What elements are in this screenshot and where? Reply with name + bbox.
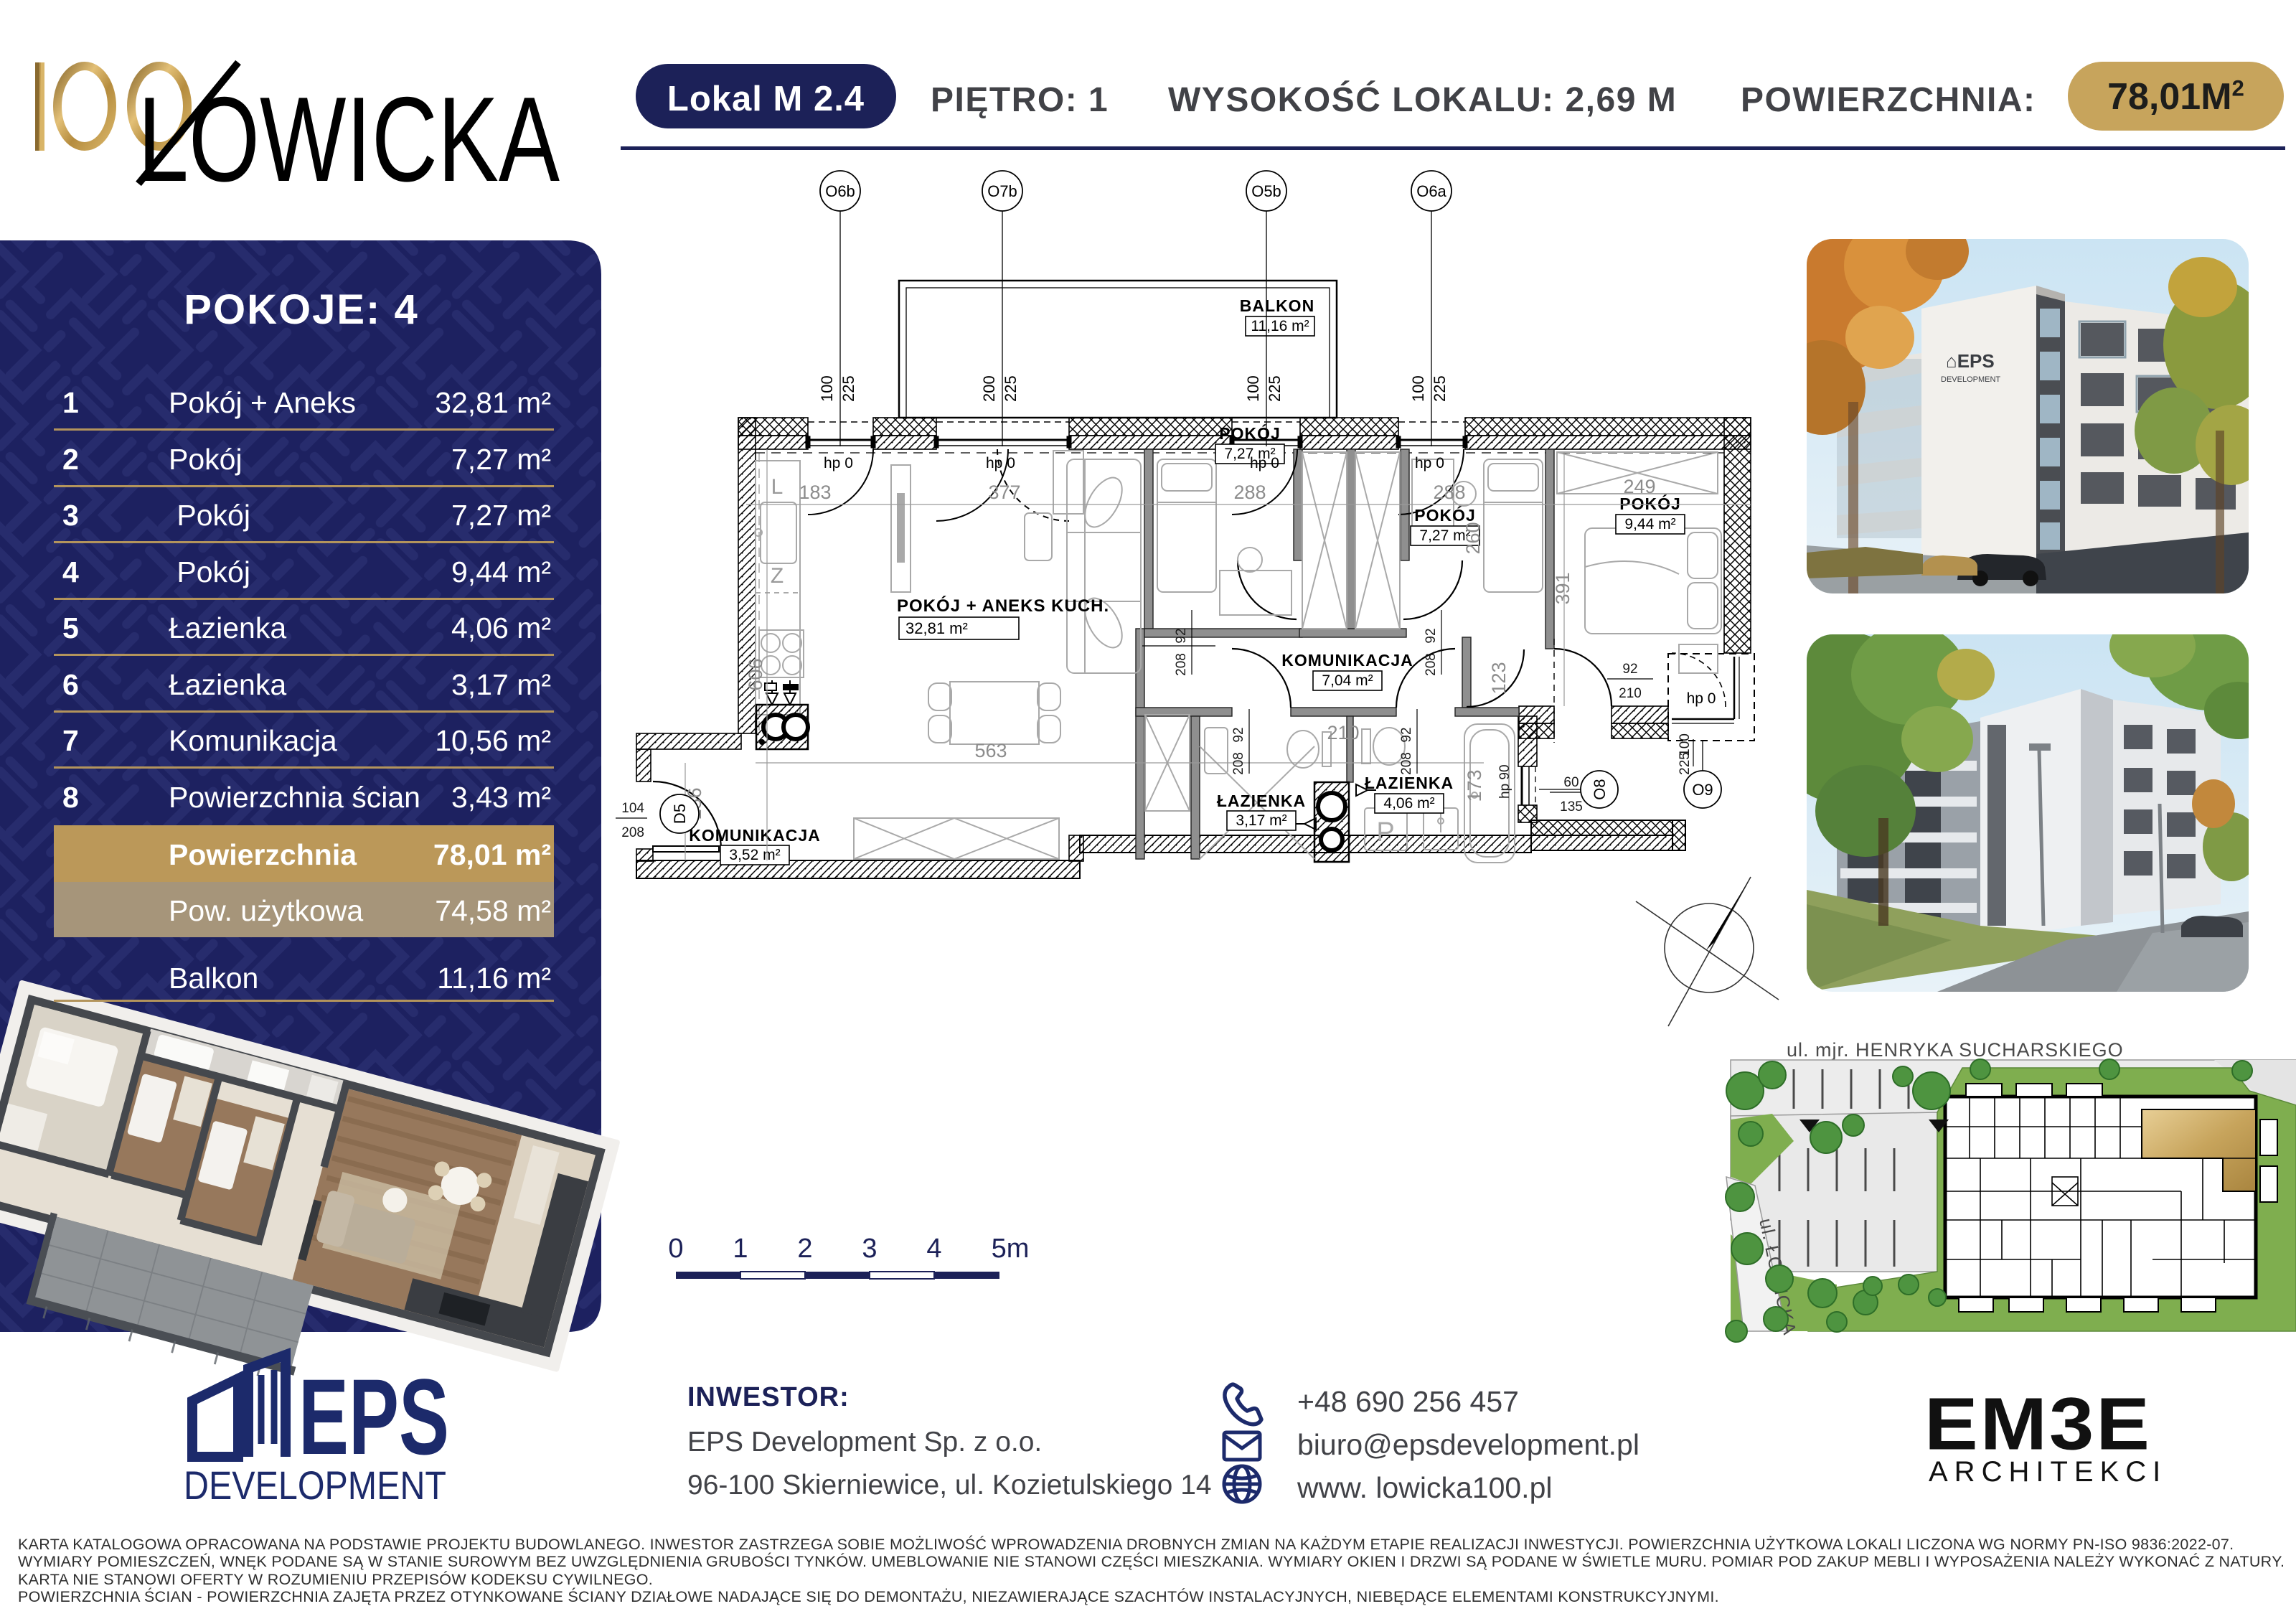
svg-text:208: 208 — [1174, 653, 1189, 676]
svg-text:225: 225 — [1002, 375, 1020, 402]
svg-text:260: 260 — [1462, 522, 1484, 554]
svg-text:7,04 m²: 7,04 m² — [1322, 672, 1373, 689]
svg-text:⌂EPS: ⌂EPS — [1946, 350, 1995, 372]
svg-text:100: 100 — [1409, 375, 1427, 402]
svg-text:O6b: O6b — [825, 182, 855, 200]
svg-text:563: 563 — [974, 740, 1007, 761]
svg-text:hp 0: hp 0 — [1250, 455, 1279, 471]
svg-text:225: 225 — [1266, 375, 1284, 402]
svg-text:225: 225 — [839, 375, 857, 402]
svg-text:O6a: O6a — [1416, 182, 1446, 200]
svg-text:O8: O8 — [1591, 779, 1609, 799]
svg-text:O5b: O5b — [1251, 182, 1281, 200]
svg-text:135: 135 — [1560, 799, 1583, 815]
svg-text:hp 0: hp 0 — [1415, 455, 1444, 471]
svg-text:KOMUNIKACJA: KOMUNIKACJA — [1281, 651, 1413, 670]
svg-text:210: 210 — [1619, 686, 1642, 701]
svg-text:L: L — [771, 475, 784, 499]
svg-text:208: 208 — [1399, 752, 1414, 775]
svg-text:92: 92 — [1424, 628, 1439, 643]
svg-text:9,44 m²: 9,44 m² — [1624, 516, 1675, 532]
svg-text:11,16 m²: 11,16 m² — [1251, 318, 1309, 334]
svg-text:104: 104 — [621, 801, 644, 816]
svg-text:hp 0: hp 0 — [1687, 690, 1716, 707]
svg-text:92: 92 — [1399, 727, 1414, 742]
svg-text:288: 288 — [1233, 482, 1266, 503]
svg-text:D5: D5 — [671, 804, 689, 824]
svg-text:DEVELOPMENT: DEVELOPMENT — [184, 1463, 446, 1508]
svg-text:3,52 m²: 3,52 m² — [729, 847, 780, 863]
svg-text:210: 210 — [1327, 722, 1359, 743]
svg-text:ul. mjr. HENRYKA SUCHARSKIEGO: ul. mjr. HENRYKA SUCHARSKIEGO — [1787, 1039, 2124, 1061]
svg-text:3,17 m²: 3,17 m² — [1236, 812, 1286, 829]
svg-text:377: 377 — [988, 482, 1020, 503]
svg-text:BALKON: BALKON — [1240, 296, 1314, 315]
svg-text:123: 123 — [1488, 662, 1510, 694]
svg-text:1: 1 — [733, 1234, 748, 1264]
svg-text:606: 606 — [745, 658, 766, 690]
svg-text:hp 0: hp 0 — [986, 455, 1015, 471]
svg-text:249: 249 — [1623, 476, 1655, 497]
svg-text:POKÓJ: POKÓJ — [1414, 505, 1476, 525]
svg-text:ARCHITEKCI: ARCHITEKCI — [1929, 1456, 2167, 1488]
svg-text:225: 225 — [1431, 375, 1449, 402]
svg-text:hp 0: hp 0 — [824, 455, 853, 471]
svg-text:0: 0 — [668, 1234, 683, 1264]
svg-text:92: 92 — [1174, 628, 1189, 643]
svg-text:DEVELOPMENT: DEVELOPMENT — [1941, 375, 2000, 384]
svg-text:ŁAZIENKA: ŁAZIENKA — [1217, 792, 1306, 810]
svg-text:92: 92 — [1622, 662, 1637, 677]
svg-text:92: 92 — [1231, 727, 1246, 742]
svg-text:2: 2 — [797, 1234, 812, 1264]
svg-text:4: 4 — [926, 1234, 941, 1264]
svg-text:hp 90: hp 90 — [1497, 764, 1512, 799]
svg-text:P: P — [1376, 817, 1394, 848]
svg-text:O9: O9 — [1692, 781, 1713, 799]
svg-text:Z: Z — [771, 564, 784, 588]
svg-text:3: 3 — [862, 1234, 877, 1264]
svg-text:100: 100 — [818, 375, 836, 402]
svg-text:183: 183 — [799, 482, 831, 503]
svg-text:391: 391 — [1552, 572, 1573, 604]
svg-text:100: 100 — [1244, 375, 1262, 402]
svg-text:POKÓJ + ANEKS KUCH.: POKÓJ + ANEKS KUCH. — [897, 596, 1109, 616]
svg-text:32,81 m²: 32,81 m² — [905, 619, 968, 637]
svg-text:60: 60 — [1563, 775, 1578, 790]
svg-text:POKÓJ: POKÓJ — [1219, 423, 1281, 443]
svg-text:208: 208 — [621, 825, 644, 840]
svg-text:KOMUNIKACJA: KOMUNIKACJA — [689, 826, 821, 845]
svg-text:200: 200 — [980, 375, 998, 402]
svg-text:173: 173 — [1464, 769, 1485, 802]
svg-text:EM3E: EM3E — [1924, 1383, 2152, 1465]
svg-text:ŁAZIENKA: ŁAZIENKA — [1365, 774, 1454, 792]
svg-text:208: 208 — [1231, 752, 1246, 775]
svg-text:EPS: EPS — [298, 1356, 449, 1477]
svg-text:225: 225 — [1678, 752, 1693, 775]
svg-text:288: 288 — [1433, 482, 1465, 503]
svg-text:4,06 m²: 4,06 m² — [1383, 795, 1434, 812]
svg-text:O7b: O7b — [987, 182, 1017, 200]
svg-text:5m: 5m — [992, 1234, 1030, 1264]
svg-text:208: 208 — [1424, 653, 1439, 676]
